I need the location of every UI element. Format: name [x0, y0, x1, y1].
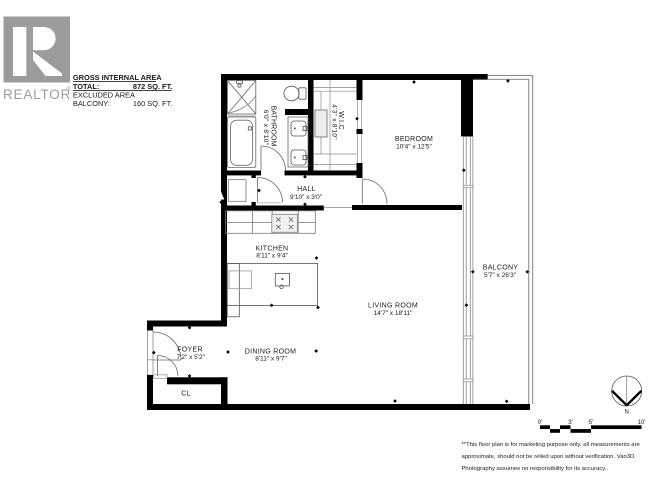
svg-text:14'7" x 18'11": 14'7" x 18'11" — [374, 310, 413, 317]
svg-text:5': 5' — [589, 420, 593, 426]
svg-text:N: N — [625, 410, 629, 416]
svg-text:approximate, should not be rel: approximate, should not be relied upon w… — [462, 454, 635, 460]
svg-text:4'3" x 8'10": 4'3" x 8'10" — [331, 104, 338, 140]
svg-text:6'0" x 8'10": 6'0" x 8'10" — [262, 110, 269, 146]
svg-text:**This floor plan is for marke: **This floor plan is for marketing purpo… — [462, 442, 641, 448]
svg-text:872 SQ. FT.: 872 SQ. FT. — [133, 82, 172, 91]
svg-text:FOYER: FOYER — [177, 347, 203, 354]
svg-text:KITCHEN: KITCHEN — [256, 245, 289, 252]
svg-text:DINING ROOM: DINING ROOM — [245, 348, 297, 355]
svg-text:160 SQ. FT.: 160 SQ. FT. — [133, 99, 172, 108]
svg-text:Photography assumes no respons: Photography assumes no responsibility fo… — [462, 466, 609, 472]
svg-text:BALCONY: BALCONY — [483, 265, 519, 272]
svg-text:BATHROOM: BATHROOM — [270, 105, 277, 146]
svg-text:HALL: HALL — [297, 186, 316, 193]
svg-text:®: ® — [67, 86, 72, 93]
svg-text:CL: CL — [181, 391, 191, 398]
svg-text:BEDROOM: BEDROOM — [395, 136, 433, 143]
svg-text:3': 3' — [568, 420, 572, 426]
svg-text:10'4" x 12'5": 10'4" x 12'5" — [396, 144, 432, 151]
svg-text:LIVING ROOM: LIVING ROOM — [368, 303, 418, 310]
svg-text:GROSS INTERNAL AREA: GROSS INTERNAL AREA — [73, 73, 162, 82]
svg-text:0': 0' — [538, 420, 542, 426]
svg-text:REALTOR: REALTOR — [3, 87, 71, 102]
svg-text:10': 10' — [638, 420, 646, 426]
svg-text:5'7" x 26'3": 5'7" x 26'3" — [484, 272, 517, 279]
svg-text:8'11" x 9'7": 8'11" x 9'7" — [255, 356, 287, 363]
svg-text:7'2" x 5'2": 7'2" x 5'2" — [176, 354, 205, 361]
svg-text:8'11" x 9'4": 8'11" x 9'4" — [256, 252, 288, 259]
svg-text:BALCONY:: BALCONY: — [73, 99, 110, 108]
svg-text:9'10" x 3'0": 9'10" x 3'0" — [290, 194, 323, 201]
